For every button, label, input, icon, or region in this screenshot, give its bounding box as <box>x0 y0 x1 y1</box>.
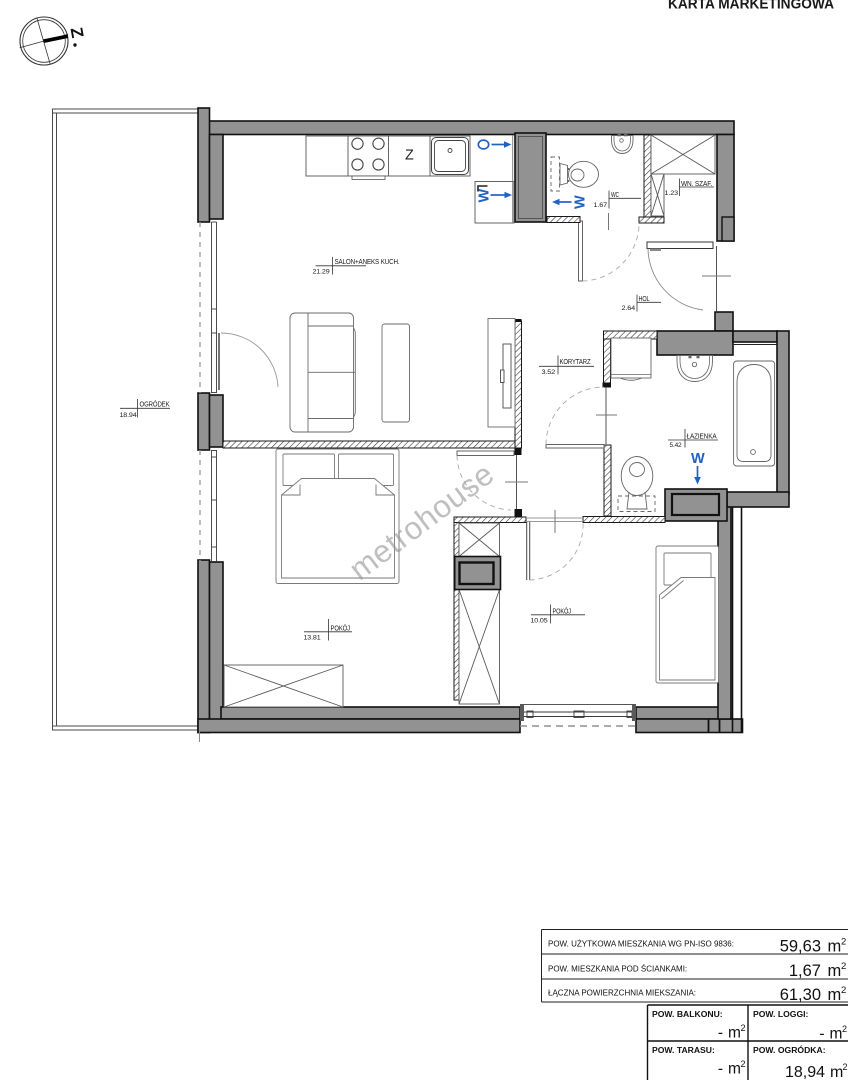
svg-text:W: W <box>477 189 493 203</box>
svg-text:2.64: 2.64 <box>622 305 636 312</box>
svg-text:2: 2 <box>741 1059 746 1069</box>
svg-text:m: m <box>830 1026 843 1043</box>
svg-text:POW. LOGGI:: POW. LOGGI: <box>753 1009 809 1019</box>
svg-text:-: - <box>718 1025 723 1042</box>
svg-text:POW. OGRÓDKA:: POW. OGRÓDKA: <box>753 1044 826 1055</box>
svg-text:-: - <box>819 1026 824 1043</box>
svg-text:HOL: HOL <box>639 294 650 303</box>
svg-text:-: - <box>718 1061 723 1078</box>
svg-text:POW. BALKONU:: POW. BALKONU: <box>652 1009 723 1019</box>
svg-text:1,67: 1,67 <box>789 962 821 980</box>
svg-text:59,63: 59,63 <box>780 938 821 956</box>
svg-text:2: 2 <box>841 961 846 972</box>
svg-text:m: m <box>828 986 842 1004</box>
svg-text:3.52: 3.52 <box>542 369 556 376</box>
svg-text:5.42: 5.42 <box>670 442 682 449</box>
svg-text:2: 2 <box>841 985 846 996</box>
svg-text:POKÓJ: POKÓJ <box>331 623 351 632</box>
svg-text:OGRÓDEK: OGRÓDEK <box>140 400 170 409</box>
svg-text:POW. UŻYTKOWA MIESZKANIA WG PN: POW. UŻYTKOWA MIESZKANIA WG PN-ISO 9836: <box>548 940 734 949</box>
svg-text:2: 2 <box>741 1023 746 1033</box>
svg-text:ŁAZIENKA: ŁAZIENKA <box>687 432 717 441</box>
svg-text:Z: Z <box>405 148 414 164</box>
svg-text:m: m <box>728 1025 741 1042</box>
svg-text:KORYTARZ: KORYTARZ <box>560 357 592 366</box>
svg-text:61,30: 61,30 <box>780 986 821 1004</box>
svg-text:W: W <box>691 451 705 467</box>
svg-text:m: m <box>728 1061 741 1078</box>
svg-text:m: m <box>828 962 842 980</box>
svg-text:WC: WC <box>611 190 619 199</box>
svg-text:POKÓJ: POKÓJ <box>553 606 572 615</box>
svg-text:2: 2 <box>841 937 846 948</box>
svg-text:2: 2 <box>843 1062 848 1072</box>
svg-text:m: m <box>830 1064 843 1080</box>
svg-text:SALON+ANEKS KUCH.: SALON+ANEKS KUCH. <box>335 257 400 266</box>
svg-text:1.23: 1.23 <box>665 190 679 197</box>
svg-text:1.67: 1.67 <box>594 202 608 209</box>
svg-text:POW. TARASU:: POW. TARASU: <box>652 1045 715 1055</box>
svg-text:KARTA MARKETINGOWA: KARTA MARKETINGOWA <box>668 0 834 13</box>
svg-text:m: m <box>828 938 842 956</box>
svg-text:18.94: 18.94 <box>120 412 137 419</box>
svg-text:WN. SZAF.: WN. SZAF. <box>681 179 712 188</box>
svg-text:POW. MIESZKANIA POD ŚCIANKAMI:: POW. MIESZKANIA POD ŚCIANKAMI: <box>548 965 687 974</box>
svg-text:ŁĄCZNA POWIERZCHNIA MIEKSZANIA: ŁĄCZNA POWIERZCHNIA MIEKSZANIA: <box>548 989 696 998</box>
svg-text:21.29: 21.29 <box>313 268 330 275</box>
svg-text:W: W <box>573 195 589 209</box>
svg-text:18,94: 18,94 <box>785 1064 825 1080</box>
svg-text:2: 2 <box>842 1024 847 1034</box>
svg-text:13.81: 13.81 <box>304 635 321 642</box>
svg-text:10.05: 10.05 <box>531 617 548 624</box>
